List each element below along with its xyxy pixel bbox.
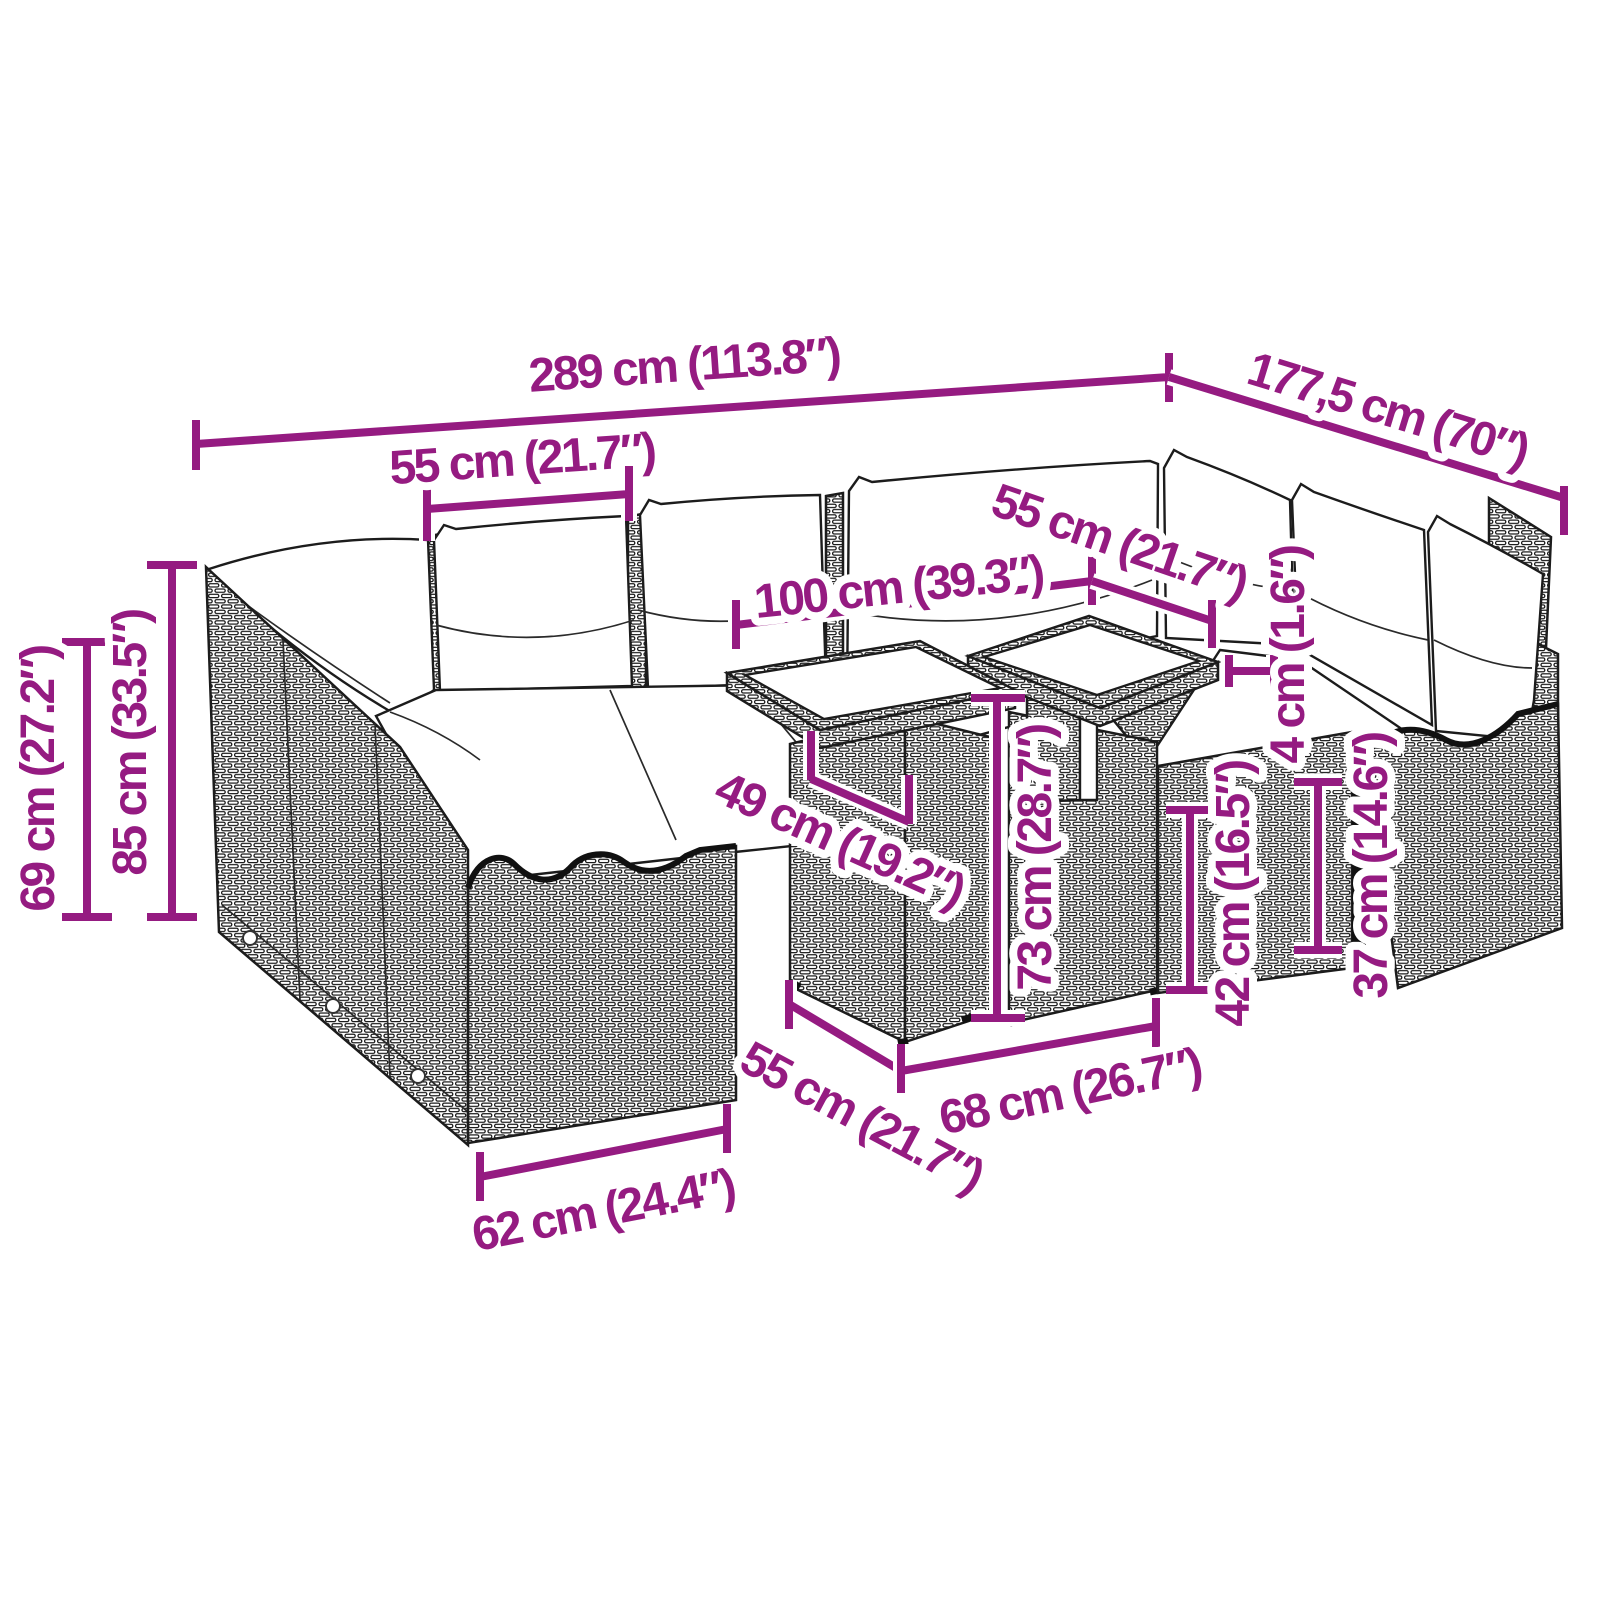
svg-text:37 cm (14.6″): 37 cm (14.6″) xyxy=(1345,733,1398,999)
svg-text:42 cm (16.5″): 42 cm (16.5″) xyxy=(1207,761,1260,1027)
svg-text:4 cm (1.6″): 4 cm (1.6″) xyxy=(1262,546,1315,763)
svg-text:73 cm (28.7″): 73 cm (28.7″) xyxy=(1009,725,1062,991)
svg-text:85 cm (33.5″): 85 cm (33.5″) xyxy=(104,610,157,876)
svg-text:69 cm (27.2″): 69 cm (27.2″) xyxy=(12,646,65,912)
